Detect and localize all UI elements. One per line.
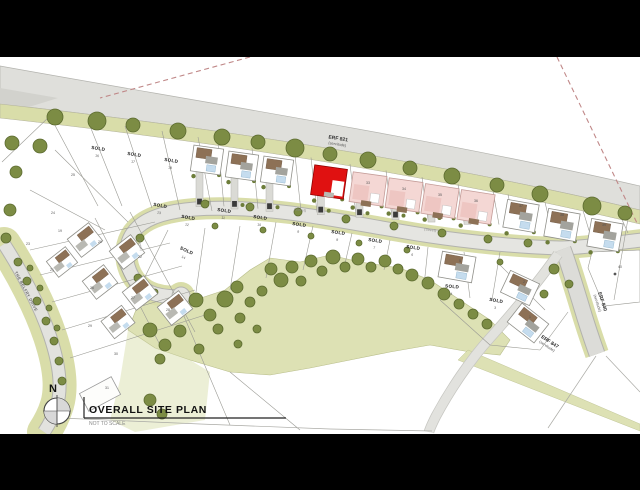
plot-number: 5 (459, 259, 461, 263)
tree-icon (46, 305, 52, 311)
tree-icon (265, 263, 277, 275)
tree-icon (155, 354, 165, 364)
tree-icon (54, 325, 60, 331)
plot-number: 38 (560, 213, 564, 217)
erf847-label: ERF 847(servitude) (537, 334, 559, 353)
tree-icon (444, 168, 460, 184)
parked-car (318, 207, 323, 213)
tree-icon (253, 325, 261, 333)
tree-icon (55, 357, 63, 365)
tree-icon (379, 255, 391, 267)
pool (561, 230, 572, 238)
tree-icon (234, 340, 242, 348)
house-white (260, 156, 293, 186)
tree-icon (260, 227, 266, 233)
svg-text:SOLD: SOLD (368, 237, 383, 244)
sold-label: SOLD18 (163, 157, 179, 171)
svg-text:SOLD: SOLD (179, 245, 194, 256)
plot-number: 14 (181, 255, 186, 260)
plot-number: 35 (438, 193, 442, 197)
plot-number: 24 (51, 211, 55, 215)
tree-icon (366, 262, 376, 272)
pool (276, 176, 286, 183)
letterbox-top (0, 0, 640, 57)
tree-icon (438, 229, 446, 237)
tree-icon (10, 166, 22, 178)
svg-text:SOLD: SOLD (91, 145, 106, 152)
tree-icon (194, 344, 204, 354)
tree-icon (37, 285, 43, 291)
tree-icon (356, 240, 362, 246)
plot-number: 17 (131, 160, 136, 165)
shrub (366, 211, 370, 215)
tree-icon (33, 139, 47, 153)
tree-icon (468, 309, 478, 319)
shrub (241, 203, 245, 207)
plot-number: 21 (50, 268, 54, 272)
plot-number: 26 (90, 286, 94, 290)
sold-label: SOLD7 (367, 237, 383, 251)
plot-number: 1 (529, 315, 531, 319)
tree-icon (352, 253, 364, 265)
tree-icon (14, 258, 22, 266)
tree-icon (317, 266, 327, 276)
plot-number: 7 (373, 246, 376, 250)
shrub (545, 240, 549, 244)
tree-icon (257, 286, 267, 296)
house-cottage (82, 265, 117, 300)
shrub (459, 223, 463, 227)
parked-car (267, 203, 272, 209)
house-pink (456, 190, 495, 227)
plot-number: 27 (131, 296, 135, 300)
tree-icon (212, 223, 218, 229)
shrub (261, 185, 265, 189)
tree-icon (323, 147, 337, 161)
plot-number: 28 (166, 308, 170, 312)
tree-icon (482, 319, 492, 329)
tree-icon (42, 317, 50, 325)
shrub (402, 214, 406, 218)
plot-number: 13 (157, 211, 162, 216)
sold-label: SOLD3 (488, 297, 504, 311)
tree-icon (170, 123, 186, 139)
plot-number: 34 (402, 187, 406, 191)
tree-icon (159, 339, 171, 351)
svg-text:SOLD: SOLD (489, 297, 504, 304)
tree-icon (189, 293, 203, 307)
plot-number: 18 (168, 166, 173, 171)
shrub (351, 205, 355, 209)
svg-text:SOLD: SOLD (331, 229, 346, 236)
tree-icon (251, 135, 265, 149)
house-cottage (46, 247, 77, 278)
parked-car (393, 212, 398, 218)
tree-icon (286, 139, 304, 157)
svg-text:SOLD: SOLD (127, 151, 142, 158)
tree-icon (342, 215, 350, 223)
plot-number: 16 (95, 154, 100, 159)
tree-icon (524, 239, 532, 247)
plot-number: 22 (138, 255, 142, 259)
site-plan-drawing: SOLD16SOLD17SOLD18SOLD13SOLD14SOLD12SOLD… (0, 0, 640, 490)
tree-icon (406, 269, 418, 281)
shrub (191, 174, 195, 178)
plot-number: 8 (336, 238, 339, 242)
tree-icon (204, 309, 216, 321)
sold-label: SOLD17 (126, 151, 142, 165)
parked-car (357, 209, 362, 215)
plot-number: 25 (71, 173, 75, 177)
open-space-tail (458, 350, 640, 431)
tree-icon (286, 261, 298, 273)
house-pink (385, 178, 423, 215)
shrub (588, 250, 592, 254)
house-pink (420, 184, 459, 221)
north-letter: N (49, 383, 57, 395)
shrub (327, 209, 331, 213)
sold-label: SOLD8 (330, 229, 346, 243)
boundary-dashed-left (100, 57, 250, 98)
tree-icon (201, 200, 209, 208)
house-white (190, 145, 223, 175)
tree-icon (549, 264, 559, 274)
shrub (423, 217, 427, 221)
tree-icon (174, 325, 186, 337)
tree-icon (540, 290, 548, 298)
plot-number: 20 (98, 240, 102, 244)
tree-icon (360, 152, 376, 168)
tree-icon (583, 197, 601, 215)
plot-number: 12 (185, 223, 190, 228)
house-white (225, 151, 258, 181)
letterbox-bottom (0, 434, 640, 490)
parked-car (232, 201, 237, 207)
plot-number: 40 (618, 265, 622, 269)
plot-number: 11 (221, 216, 225, 220)
tree-icon (126, 118, 140, 132)
tree-icon (484, 235, 492, 243)
tree-icon (618, 206, 632, 220)
tree-icon (490, 178, 504, 192)
plot-number: 36 (474, 199, 478, 203)
tree-icon (403, 161, 417, 175)
tree-icon (274, 273, 288, 287)
tree-icon (497, 259, 503, 265)
sold-label: SOLD14 (176, 245, 194, 262)
tree-icon (1, 233, 11, 243)
tree-icon (213, 324, 223, 334)
site-plan-page: SOLD16SOLD17SOLD18SOLD13SOLD14SOLD12SOLD… (0, 0, 640, 490)
plot-number: 31 (105, 386, 109, 390)
tree-icon (340, 262, 350, 272)
plot-number: 4 (450, 292, 452, 296)
tree-icon (454, 299, 464, 309)
tree-icon (214, 129, 230, 145)
plot-number: 29 (88, 324, 92, 328)
tree-icon (393, 264, 403, 274)
plot-number: 3 (494, 306, 497, 310)
sold-label: SOLD9 (291, 221, 307, 235)
plot-number: 33 (366, 181, 370, 185)
plot-number: 10 (257, 223, 261, 228)
house-red (311, 165, 348, 199)
plot-number: 30 (114, 352, 118, 356)
tree-icon (296, 276, 306, 286)
shrub (312, 198, 316, 202)
tree-icon (88, 112, 106, 130)
tree-icon (438, 288, 450, 300)
tree-icon (27, 265, 33, 271)
svg-text:SOLD: SOLD (292, 221, 307, 228)
plot-number: 2 (523, 280, 525, 284)
tree-icon (305, 255, 317, 267)
plot-number: 9 (297, 230, 300, 234)
tree-icon (4, 204, 16, 216)
shrub (276, 205, 280, 209)
pool (241, 171, 251, 178)
plot-number: 39 (602, 223, 606, 227)
tree-icon (231, 281, 243, 293)
tree-icon (47, 109, 63, 125)
shrub (226, 180, 230, 184)
tree-icon (5, 136, 19, 150)
tree-icon (422, 277, 434, 289)
plot-number: 6 (411, 253, 414, 257)
pool (604, 240, 615, 248)
plot-number: 19 (58, 229, 62, 233)
tree-icon (390, 222, 398, 230)
tree-icon (217, 291, 233, 307)
tree-icon (245, 297, 255, 307)
shrub (504, 231, 508, 235)
plan-title: OVERALL SITE PLAN (89, 404, 207, 416)
tree-icon (50, 337, 58, 345)
house-white (438, 251, 476, 283)
plot-number: 37 (519, 204, 523, 208)
tree-icon (58, 377, 66, 385)
tree-icon (143, 323, 157, 337)
plan-subtitle: NOT TO SCALE (89, 421, 126, 427)
tree-icon (532, 186, 548, 202)
tree-icon (308, 233, 314, 239)
plot-number: 23 (26, 242, 30, 246)
svg-text:SOLD: SOLD (164, 157, 179, 164)
tree-icon (565, 280, 573, 288)
house-white (500, 270, 539, 305)
sold-label: SOLD16 (90, 145, 106, 159)
tree-icon (326, 250, 340, 264)
pool (206, 165, 216, 172)
tree-icon (235, 313, 245, 323)
shrub (387, 211, 391, 215)
pool (520, 221, 531, 229)
tree-icon (246, 203, 254, 211)
